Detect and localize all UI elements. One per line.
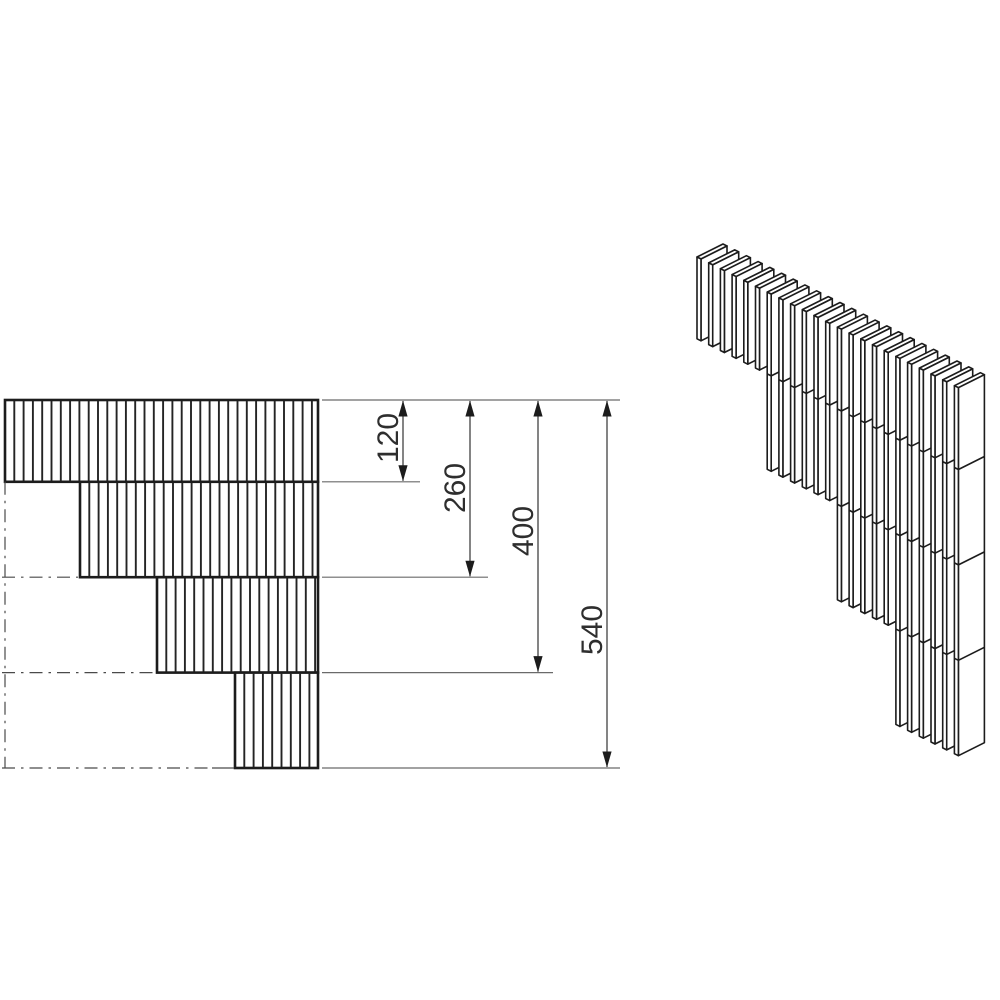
drawing-svg: 120260400540 — [0, 0, 1000, 1000]
dimension-label: 400 — [507, 506, 540, 556]
slat-front-face — [884, 351, 888, 626]
grate-band — [5, 400, 318, 482]
slat-front-face — [791, 304, 795, 483]
slat-front-face — [697, 257, 701, 341]
grate-band — [157, 577, 318, 672]
front-elevation-view — [2, 400, 318, 768]
arrowhead-down — [398, 465, 407, 481]
slat-front-face — [779, 298, 783, 477]
iso-slat — [954, 373, 984, 756]
arrowhead-up — [533, 401, 542, 417]
arrowhead-up — [465, 401, 474, 417]
dimension-annotations: 120260400540 — [322, 400, 620, 768]
slat-front-face — [873, 345, 877, 620]
slat-front-face — [954, 386, 958, 756]
isometric-slat-view — [697, 244, 984, 756]
arrowhead-down — [465, 561, 474, 577]
grate-band — [80, 482, 318, 577]
arrowhead-down — [533, 656, 542, 672]
slat-front-face — [849, 333, 853, 608]
grate-band — [235, 673, 318, 768]
slat-front-face — [826, 321, 830, 500]
band-outline — [235, 673, 318, 768]
technical-drawing-canvas: 120260400540 — [0, 0, 1000, 1000]
slat-front-face — [802, 310, 806, 489]
slat-front-face — [919, 368, 923, 738]
slat-front-face — [732, 275, 736, 359]
slat-front-face — [720, 269, 724, 353]
band-outline — [80, 482, 318, 577]
slat-front-face — [931, 374, 935, 744]
dimension-label: 260 — [439, 463, 472, 513]
slat-side-face — [958, 375, 984, 756]
slat-front-face — [861, 339, 865, 614]
slat-front-face — [709, 263, 713, 347]
slat-front-face — [837, 327, 841, 602]
slat-front-face — [814, 316, 818, 495]
slat-front-face — [744, 280, 748, 364]
slat-front-face — [896, 356, 900, 726]
slat-front-face — [943, 380, 947, 750]
slat-front-face — [756, 286, 760, 370]
arrowhead-up — [602, 401, 611, 417]
slat-front-face — [767, 292, 771, 471]
dimension-label: 540 — [576, 605, 609, 655]
dimension-label: 120 — [372, 413, 405, 463]
band-outline — [157, 577, 318, 672]
slat-front-face — [908, 362, 912, 732]
arrowhead-down — [602, 752, 611, 768]
